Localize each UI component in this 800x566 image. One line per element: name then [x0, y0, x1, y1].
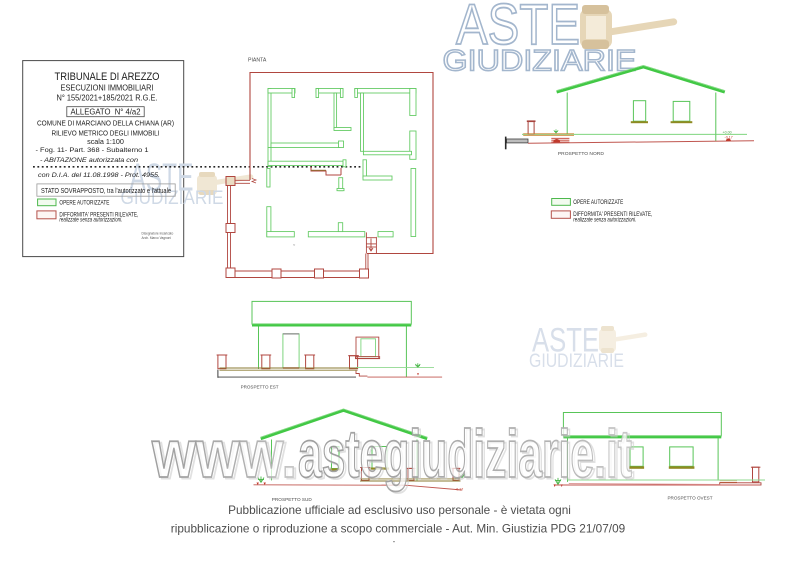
svg-text:PIANTA: PIANTA	[248, 58, 267, 64]
svg-text:Arch. Marco Vagnoni: Arch. Marco Vagnoni	[142, 236, 172, 240]
svg-text:ESECUZIONI IMMOBILIARI: ESECUZIONI IMMOBILIARI	[61, 83, 154, 93]
svg-text:realizzate senza autorizzazion: realizzate senza autorizzazioni.	[573, 218, 636, 224]
svg-text:realizzate senza autorizzazion: realizzate senza autorizzazioni.	[59, 218, 122, 224]
svg-text:www.: www.	[151, 417, 297, 492]
svg-text:ripubblicazione o riproduzione: ripubblicazione o riproduzione a scopo c…	[171, 522, 625, 536]
svg-text:PROSPETTO EST: PROSPETTO EST	[241, 385, 279, 390]
svg-text:GIUDIZIARIE: GIUDIZIARIE	[443, 45, 637, 78]
svg-text:scala 1:100: scala 1:100	[87, 137, 124, 146]
svg-text:con D.I.A. del 11.08.1998 - Pr: con D.I.A. del 11.08.1998 - Prot. 4955.	[38, 172, 160, 179]
svg-text:N° 155/2021+185/2021 R.G.E.: N° 155/2021+185/2021 R.G.E.	[57, 92, 158, 102]
svg-text:-: -	[393, 537, 396, 546]
svg-text:astegiudiziarie.it: astegiudiziarie.it	[298, 417, 632, 492]
svg-text:PROSPETTO NORD: PROSPETTO NORD	[558, 151, 605, 156]
svg-text:OPERE AUTORIZZATE: OPERE AUTORIZZATE	[59, 201, 109, 207]
svg-text:TRIBUNALE DI AREZZO: TRIBUNALE DI AREZZO	[55, 71, 160, 83]
svg-text:PROSPETTO OVEST: PROSPETTO OVEST	[668, 496, 713, 501]
svg-text:OPERE AUTORIZZATE: OPERE AUTORIZZATE	[573, 200, 623, 206]
svg-text:+0.00: +0.00	[723, 131, 732, 135]
svg-text:- ABITAZIONE autorizzata con: - ABITAZIONE autorizzata con	[40, 157, 138, 164]
svg-text:ALLEGATO N° 4/a2: ALLEGATO N° 4/a2	[71, 107, 141, 117]
svg-text:STATO SOVRAPPOSTO, tra l'autor: STATO SOVRAPPOSTO, tra l'autorizzato e l…	[41, 188, 171, 195]
svg-text:PROSPETTO SUD: PROSPETTO SUD	[272, 497, 313, 502]
svg-text:- Fog. 11- Part. 368 - Subalte: - Fog. 11- Part. 368 - Subalterno 1	[36, 147, 149, 154]
svg-text:Pubblicazione ufficiale ad esc: Pubblicazione ufficiale ad esclusivo uso…	[228, 503, 571, 517]
svg-text:COMUNE DI MARCIANO DELLA CHIAN: COMUNE DI MARCIANO DELLA CHIANA (AR)	[37, 119, 174, 128]
svg-text:GIUDIZIARIE: GIUDIZIARIE	[529, 350, 624, 372]
